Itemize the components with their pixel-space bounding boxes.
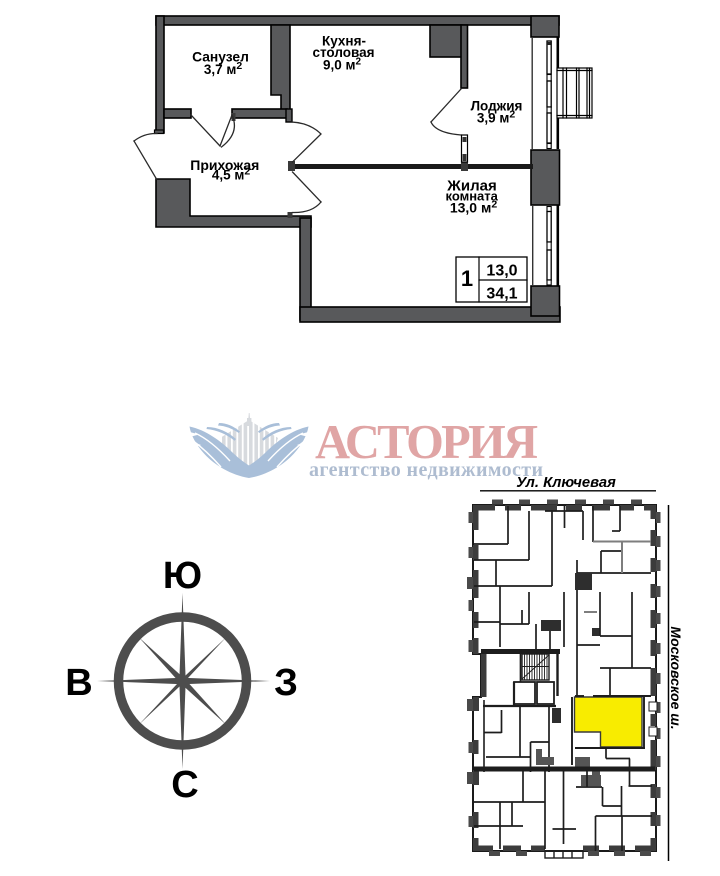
svg-text:1: 1 xyxy=(461,266,473,291)
svg-text:агентство недвижимости: агентство недвижимости xyxy=(309,459,543,481)
svg-text:Ул. Ключевая: Ул. Ключевая xyxy=(516,475,616,491)
svg-text:С: С xyxy=(171,764,198,806)
svg-text:З: З xyxy=(274,662,298,704)
svg-text:34,1: 34,1 xyxy=(486,286,517,303)
svg-text:В: В xyxy=(65,662,92,704)
svg-text:13,0 м2: 13,0 м2 xyxy=(450,199,498,216)
svg-text:Московское ш.: Московское ш. xyxy=(668,626,684,729)
svg-text:Ю: Ю xyxy=(163,555,202,597)
svg-text:13,0: 13,0 xyxy=(486,263,517,280)
